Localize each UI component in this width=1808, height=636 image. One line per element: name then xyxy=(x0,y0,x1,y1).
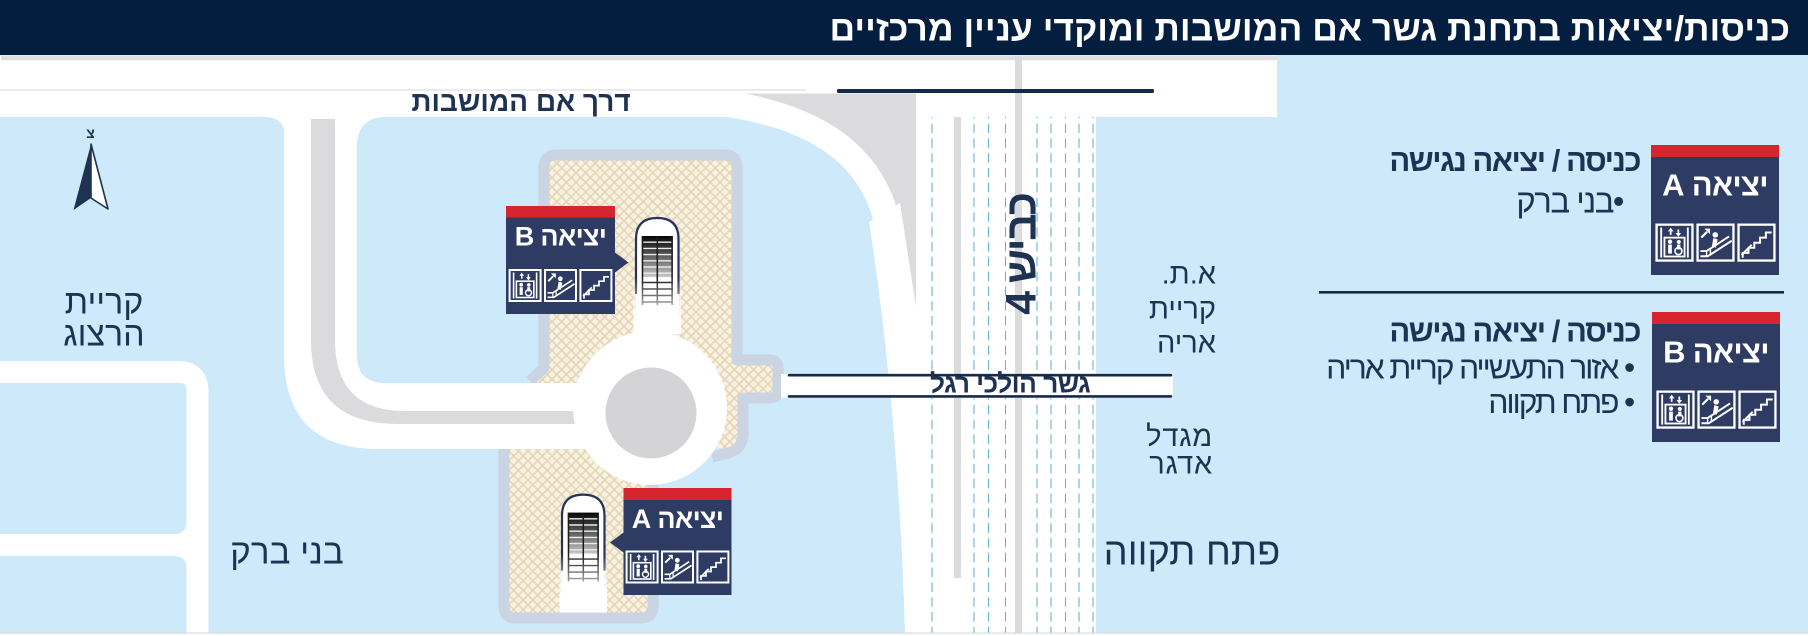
svg-text:בני ברק: בני ברק xyxy=(230,533,344,572)
svg-text:כניסה / יציאה נגישה: כניסה / יציאה נגישה xyxy=(1389,143,1640,178)
svg-text:כביש 4: כביש 4 xyxy=(998,194,1046,315)
svg-text:פתח תקווה: פתח תקווה xyxy=(1104,532,1281,574)
svg-text:יציאה A: יציאה A xyxy=(632,504,724,534)
svg-text:•בני ברק: •בני ברק xyxy=(1516,183,1624,220)
svg-text:• אזור התעשייה קריית אריה: • אזור התעשייה קריית אריה xyxy=(1326,350,1634,386)
svg-text:אריה: אריה xyxy=(1157,328,1216,360)
svg-text:יציאה B: יציאה B xyxy=(1663,335,1769,370)
svg-text:דרך אם המושבות: דרך אם המושבות xyxy=(411,86,630,117)
svg-text:א.ת.: א.ת. xyxy=(1162,259,1216,291)
svg-text:גשר הולכי רגל: גשר הולכי רגל xyxy=(930,369,1091,399)
svg-text:• פתח תקווה: • פתח תקווה xyxy=(1488,384,1634,420)
svg-text:כניסה / יציאה נגישה: כניסה / יציאה נגישה xyxy=(1389,314,1640,349)
svg-text:קריית: קריית xyxy=(1149,294,1216,326)
svg-text:אדגר: אדגר xyxy=(1149,449,1213,481)
svg-text:כניסות/יציאות בתחנת גשר אם המו: כניסות/יציאות בתחנת גשר אם המושבות ומוקד… xyxy=(830,9,1790,49)
svg-text:יציאה A: יציאה A xyxy=(1662,168,1768,203)
svg-text:צ: צ xyxy=(86,125,95,141)
svg-text:יציאה B: יציאה B xyxy=(515,222,607,252)
svg-text:הרצוג: הרצוג xyxy=(63,316,144,354)
